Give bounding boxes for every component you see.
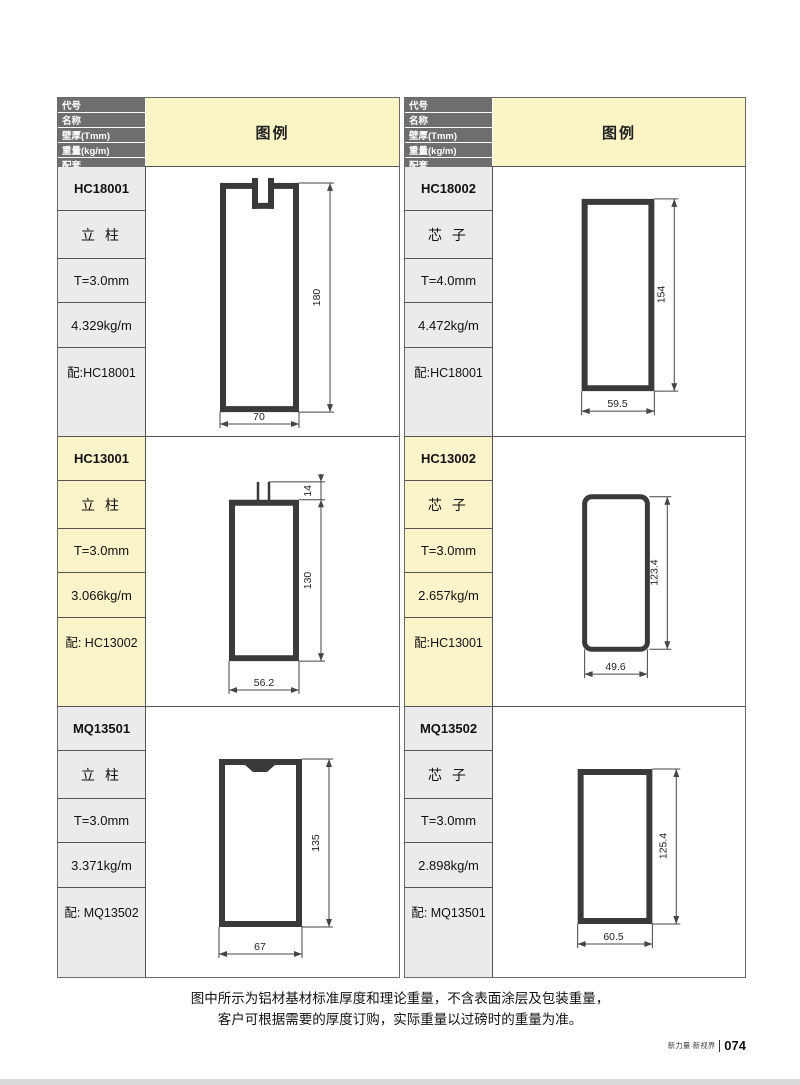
profile-drawing-hc13002: 123.4 49.6 [493, 437, 745, 706]
dim-width-label: 70 [253, 412, 265, 423]
profile-thickness: T=3.0mm [405, 799, 492, 843]
cross-section-diagram: 135 67 [146, 707, 399, 977]
profile-drawing-mq13502: 125.4 60.5 [493, 707, 745, 977]
profile-outline [582, 199, 655, 391]
dim-height-label: 135 [310, 834, 322, 852]
profile-drawing-mq13501: 135 67 [146, 707, 399, 977]
dim-tab-label: 14 [303, 485, 314, 497]
profile-code: HC18001 [58, 167, 145, 211]
table-header: 代号 名称 壁厚(Tmm) 重量(kg/m) 配套 图例 [405, 98, 745, 167]
profile-name: 立 柱 [58, 211, 145, 259]
profile-drawing-hc18001: 180 70 [146, 167, 399, 436]
profile-drawing-hc13001: 14 130 56.2 [146, 437, 399, 706]
header-row-code: 代号 [58, 98, 145, 113]
profile-section-hc18001: HC18001 立 柱 T=3.0mm 4.329kg/m 配:HC18001 [58, 167, 399, 437]
profile-match: 配:HC18001 [58, 348, 145, 436]
profile-weight: 2.898kg/m [405, 843, 492, 888]
profile-match: 配: MQ13502 [58, 888, 145, 977]
profile-thickness: T=3.0mm [58, 799, 145, 843]
dim-width-label: 56.2 [254, 678, 275, 689]
dim-height-label: 125.4 [658, 833, 669, 859]
legend-header: 图例 [493, 98, 745, 166]
bottom-edge-strip [0, 1079, 800, 1085]
profile-code: HC13001 [58, 437, 145, 481]
footer-note-line1: 图中所示为铝材基材标准厚度和理论重量，不含表面涂层及包装重量， [0, 988, 800, 1009]
header-row-thickness: 壁厚(Tmm) [58, 128, 145, 143]
profile-name: 立 柱 [58, 751, 145, 799]
dim-height-label: 180 [312, 289, 323, 307]
footer-note-line2: 客户可根据需要的厚度订购，实际重量以过磅时的重量为准。 [0, 1009, 800, 1030]
legend-header: 图例 [146, 98, 399, 166]
dim-width-label: 67 [254, 941, 266, 953]
dim-width-label: 59.5 [607, 399, 628, 410]
spec-labels: HC13001 立 柱 T=3.0mm 3.066kg/m 配: HC13002 [58, 437, 146, 706]
header-row-thickness: 壁厚(Tmm) [405, 128, 492, 143]
profile-drawing-hc18002: 154 59.5 [493, 167, 745, 436]
cross-section-diagram: 125.4 60.5 [493, 707, 745, 977]
profile-section-mq13502: MQ13502 芯 子 T=3.0mm 2.898kg/m 配: MQ13501 [405, 707, 745, 977]
profile-match: 配:HC13001 [405, 618, 492, 706]
profile-thickness: T=4.0mm [405, 259, 492, 303]
page-number: 074 [724, 1038, 746, 1053]
header-row-code: 代号 [405, 98, 492, 113]
profile-code: HC13002 [405, 437, 492, 481]
profile-table-right: 代号 名称 壁厚(Tmm) 重量(kg/m) 配套 图例 HC18002 芯 子… [404, 97, 746, 978]
profile-table-left: 代号 名称 壁厚(Tmm) 重量(kg/m) 配套 图例 HC18001 立 柱… [57, 97, 400, 978]
brand-slogan: 新力量·新视界 [668, 1040, 716, 1051]
profile-section-hc13002: HC13002 芯 子 T=3.0mm 2.657kg/m 配:HC13001 [405, 437, 745, 707]
dim-height-label: 130 [303, 572, 314, 590]
profile-name: 芯 子 [405, 751, 492, 799]
profile-outline [578, 769, 653, 924]
profile-match: 配:HC18001 [405, 348, 492, 436]
header-label-column: 代号 名称 壁厚(Tmm) 重量(kg/m) 配套 [405, 98, 493, 166]
dim-height-label: 123.4 [649, 559, 660, 585]
spec-labels: HC18001 立 柱 T=3.0mm 4.329kg/m 配:HC18001 [58, 167, 146, 436]
header-row-name: 名称 [405, 113, 492, 128]
dim-width-label: 49.6 [605, 662, 626, 673]
profile-section-hc13001: HC13001 立 柱 T=3.0mm 3.066kg/m 配: HC13002 [58, 437, 399, 707]
profile-match: 配: MQ13501 [405, 888, 492, 977]
header-row-weight: 重量(kg/m) [405, 143, 492, 158]
profile-outline [219, 759, 302, 927]
catalog-page: 代号 名称 壁厚(Tmm) 重量(kg/m) 配套 图例 HC18001 立 柱… [0, 0, 800, 1085]
spec-labels: HC18002 芯 子 T=4.0mm 4.472kg/m 配:HC18001 [405, 167, 493, 436]
page-footer: 新力量·新视界 074 [668, 1038, 746, 1053]
profile-section-hc18002: HC18002 芯 子 T=4.0mm 4.472kg/m 配:HC18001 [405, 167, 745, 437]
dimension-lines [219, 759, 333, 958]
cross-section-diagram: 154 59.5 [493, 167, 745, 436]
profile-section-mq13501: MQ13501 立 柱 T=3.0mm 3.371kg/m 配: MQ13502 [58, 707, 399, 977]
profile-outline [229, 482, 299, 661]
dimension-lines [582, 199, 679, 415]
cross-section-diagram: 123.4 49.6 [493, 437, 745, 706]
table-header: 代号 名称 壁厚(Tmm) 重量(kg/m) 配套 图例 [58, 98, 399, 167]
profile-weight: 2.657kg/m [405, 573, 492, 618]
profile-weight: 3.066kg/m [58, 573, 145, 618]
profile-thickness: T=3.0mm [405, 529, 492, 573]
profile-weight: 3.371kg/m [58, 843, 145, 888]
cross-section-diagram: 14 130 56.2 [146, 437, 399, 706]
spec-labels: MQ13502 芯 子 T=3.0mm 2.898kg/m 配: MQ13501 [405, 707, 493, 977]
profile-name: 芯 子 [405, 481, 492, 529]
dim-width-label: 60.5 [603, 932, 624, 943]
header-row-weight: 重量(kg/m) [58, 143, 145, 158]
profile-thickness: T=3.0mm [58, 529, 145, 573]
profile-thickness: T=3.0mm [58, 259, 145, 303]
header-row-name: 名称 [58, 113, 145, 128]
profile-code: MQ13501 [58, 707, 145, 751]
spec-labels: MQ13501 立 柱 T=3.0mm 3.371kg/m 配: MQ13502 [58, 707, 146, 977]
profile-outline [220, 178, 299, 412]
cross-section-diagram: 180 70 [146, 167, 399, 436]
profile-name: 立 柱 [58, 481, 145, 529]
profile-match: 配: HC13002 [58, 618, 145, 706]
profile-weight: 4.329kg/m [58, 303, 145, 348]
footer-note: 图中所示为铝材基材标准厚度和理论重量，不含表面涂层及包装重量， 客户可根据需要的… [0, 988, 800, 1030]
profile-weight: 4.472kg/m [405, 303, 492, 348]
spec-labels: HC13002 芯 子 T=3.0mm 2.657kg/m 配:HC13001 [405, 437, 493, 706]
dim-height-label: 154 [656, 286, 667, 304]
header-label-column: 代号 名称 壁厚(Tmm) 重量(kg/m) 配套 [58, 98, 146, 166]
profile-name: 芯 子 [405, 211, 492, 259]
profile-code: HC18002 [405, 167, 492, 211]
profile-code: MQ13502 [405, 707, 492, 751]
footer-divider [719, 1040, 720, 1052]
profile-outline [585, 497, 648, 649]
